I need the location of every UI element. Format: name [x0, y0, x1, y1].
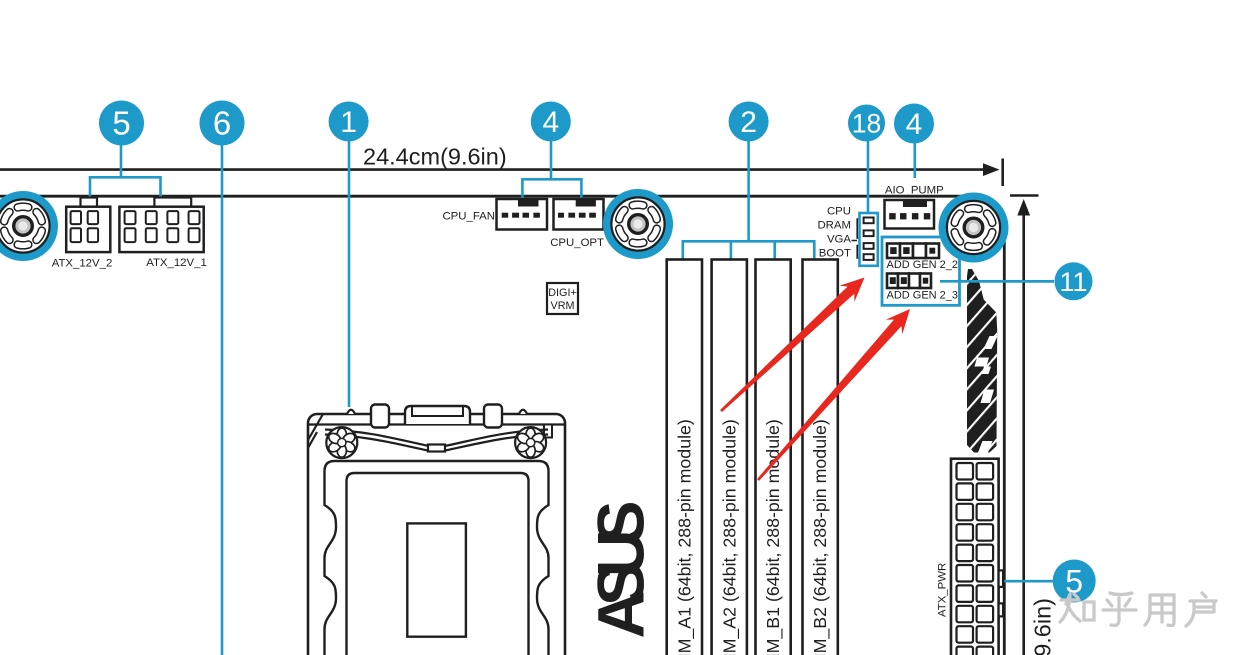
svg-text:CPU: CPU	[827, 206, 851, 218]
svg-text:DIMM_A2 (64bit, 288-pin module: DIMM_A2 (64bit, 288-pin module)	[719, 419, 740, 655]
svg-text:24.4cm(9.6in): 24.4cm(9.6in)	[363, 144, 507, 170]
svg-text:24.4cm(9.6in): 24.4cm(9.6in)	[1030, 598, 1056, 655]
svg-text:ATX_12V_1: ATX_12V_1	[146, 257, 207, 269]
svg-text:AIO_PUMP: AIO_PUMP	[885, 185, 944, 197]
svg-text:11: 11	[1059, 267, 1087, 297]
svg-text:BOOT: BOOT	[819, 247, 851, 259]
svg-text:ADD GEN 2_2: ADD GEN 2_2	[887, 259, 959, 271]
svg-text:VGA: VGA	[827, 233, 851, 245]
svg-text:ATX_PWR: ATX_PWR	[937, 563, 949, 617]
svg-text:2: 2	[740, 106, 757, 139]
svg-text:DIGI+: DIGI+	[548, 287, 577, 299]
svg-text:ADD GEN 2_3: ADD GEN 2_3	[887, 289, 959, 301]
svg-text:ASUS: ASUS	[584, 501, 658, 639]
svg-text:DIMM_A1 (64bit, 288-pin module: DIMM_A1 (64bit, 288-pin module)	[674, 419, 695, 655]
svg-text:CPU_FAN: CPU_FAN	[442, 211, 495, 223]
svg-text:CPU_OPT: CPU_OPT	[550, 237, 604, 249]
svg-text:DIMM_B2 (64bit, 288-pin module: DIMM_B2 (64bit, 288-pin module)	[810, 419, 831, 655]
svg-text:4: 4	[906, 108, 923, 141]
svg-text:4: 4	[542, 106, 559, 139]
svg-text:6: 6	[213, 105, 231, 142]
svg-text:1: 1	[340, 106, 357, 139]
svg-text:DRAM: DRAM	[817, 220, 851, 232]
svg-text:VRM: VRM	[551, 300, 575, 312]
svg-text:5: 5	[112, 105, 130, 142]
svg-text:ATX_12V_2: ATX_12V_2	[52, 258, 113, 270]
svg-text:18: 18	[852, 108, 881, 138]
